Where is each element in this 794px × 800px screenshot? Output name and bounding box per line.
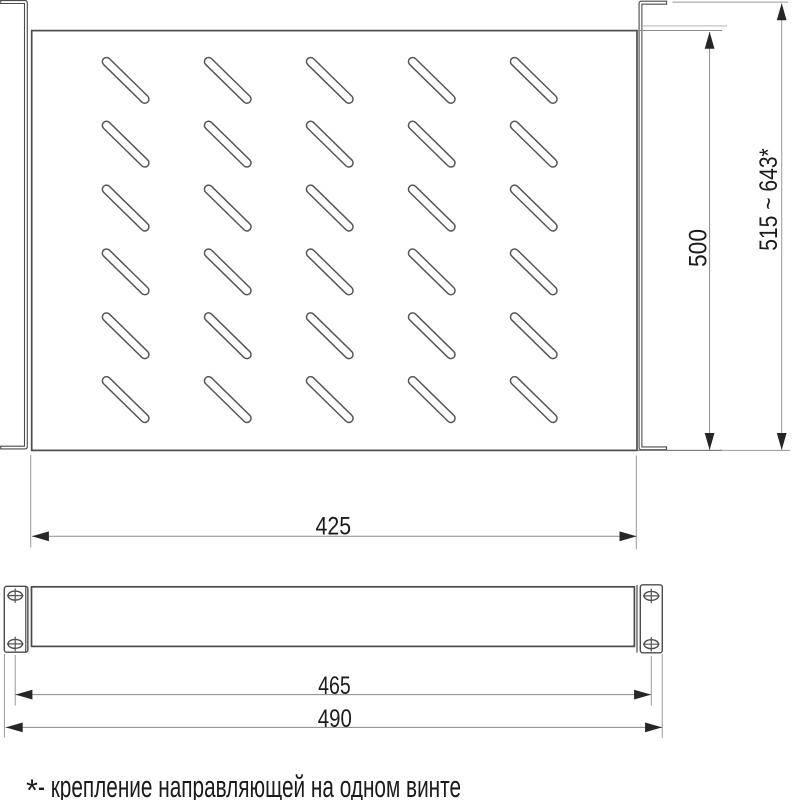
svg-text:- крепление направляющей на од: - крепление направляющей на одном винте: [38, 769, 461, 800]
svg-text:515 ~ 643*: 515 ~ 643*: [755, 148, 783, 251]
svg-text:465: 465: [318, 672, 351, 700]
svg-text:490: 490: [318, 705, 352, 733]
svg-text:425: 425: [316, 512, 352, 540]
svg-text:500: 500: [684, 229, 712, 267]
svg-text:*: *: [26, 772, 38, 800]
